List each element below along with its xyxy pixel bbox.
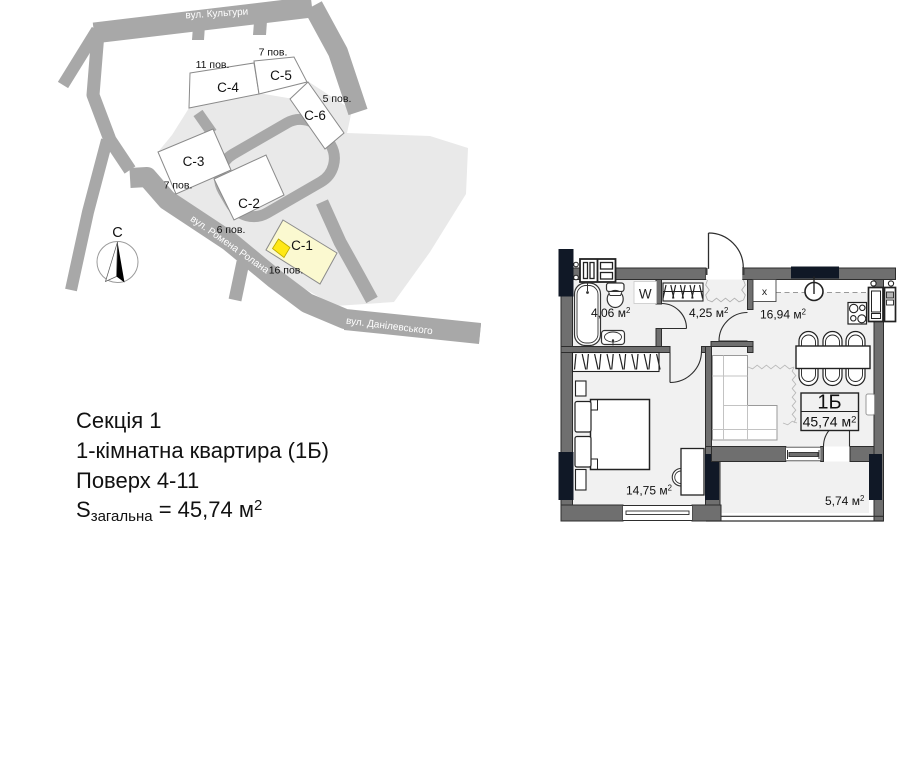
svg-text:11 пов.: 11 пов. <box>196 59 230 71</box>
svg-text:4,06 м2: 4,06 м2 <box>591 306 630 320</box>
svg-text:45,74 м2: 45,74 м2 <box>803 414 857 430</box>
svg-text:4,25 м2: 4,25 м2 <box>689 306 728 320</box>
svg-text:C-3: C-3 <box>183 154 205 169</box>
svg-text:16,94 м2: 16,94 м2 <box>760 308 806 322</box>
svg-text:W: W <box>639 287 652 302</box>
svg-text:7 пов.: 7 пов. <box>259 47 288 59</box>
svg-text:16 пов.: 16 пов. <box>269 265 304 277</box>
svg-text:14,75 м2: 14,75 м2 <box>626 484 672 498</box>
svg-text:5 пов.: 5 пов. <box>323 93 352 105</box>
svg-text:C-2: C-2 <box>238 196 260 211</box>
svg-text:C-1: C-1 <box>291 238 313 253</box>
svg-text:x: x <box>762 286 768 298</box>
svg-text:C-4: C-4 <box>217 80 239 95</box>
svg-text:7 пов.: 7 пов. <box>164 180 193 192</box>
svg-text:1Б: 1Б <box>817 392 841 414</box>
svg-text:С: С <box>112 225 122 241</box>
svg-text:C-5: C-5 <box>270 68 292 83</box>
svg-text:5,74 м2: 5,74 м2 <box>825 494 864 508</box>
svg-text:C-6: C-6 <box>304 108 326 123</box>
